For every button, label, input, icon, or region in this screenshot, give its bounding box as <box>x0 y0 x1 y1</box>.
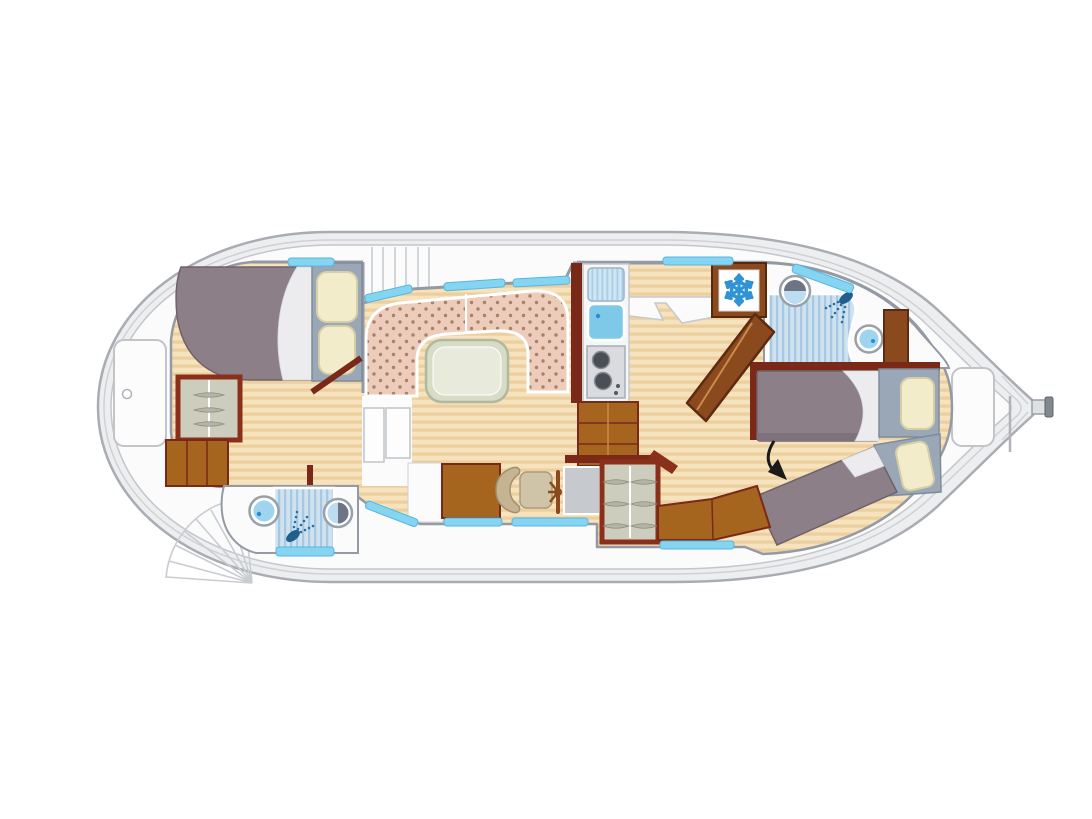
window-bow-bath-bottom <box>276 547 334 556</box>
galley-sink <box>588 304 624 340</box>
bow-washbasin-tap <box>257 512 261 516</box>
galley-sink-drain <box>596 314 600 318</box>
helm-cabinet <box>442 464 500 518</box>
bow-cabin-steps <box>166 440 228 486</box>
salon-step-box-1 <box>364 408 384 462</box>
window-bow-top <box>288 258 334 266</box>
aft-cabin-side-wall <box>750 362 757 440</box>
window-aft-bottom <box>660 541 734 549</box>
window-helm-bottom-2 <box>512 518 588 526</box>
bow-locker-handle <box>123 390 132 399</box>
helm-seat <box>520 472 552 508</box>
bow-bathroom <box>222 486 358 553</box>
helm-console <box>564 467 600 514</box>
helm-wardrobe <box>602 462 658 542</box>
boat-floor-plan-canvas <box>0 0 1092 819</box>
aft-bed-port <box>757 369 939 441</box>
aft-shower-tray <box>768 294 856 366</box>
aft-washbasin-tap <box>871 339 875 343</box>
salon-step-box-2 <box>386 408 410 458</box>
bow-washbasin-bowl <box>254 501 275 522</box>
bow-bed-pillow-1 <box>317 272 357 322</box>
galley-bulkhead <box>571 263 582 403</box>
dinette-table <box>426 340 508 402</box>
bow-wardrobe <box>178 377 240 440</box>
galley-stove <box>587 346 625 398</box>
aft-washbasin-bowl <box>860 330 879 349</box>
galley-drainer <box>588 268 624 301</box>
window-helm-bottom-1 <box>444 518 502 526</box>
aft-bathroom-cabinet <box>884 310 908 366</box>
window-galley-top <box>663 257 733 265</box>
stern-deck-locker <box>952 368 994 446</box>
bow-deck-locker <box>114 340 166 446</box>
fridge <box>712 263 766 317</box>
boat-floor-plan <box>0 0 1092 819</box>
helm-side-white <box>408 463 443 522</box>
rudder <box>1032 397 1053 417</box>
aft-bed-port-pillow <box>901 378 934 429</box>
bow-bath-door-jamb <box>307 465 313 487</box>
galley <box>571 263 638 466</box>
